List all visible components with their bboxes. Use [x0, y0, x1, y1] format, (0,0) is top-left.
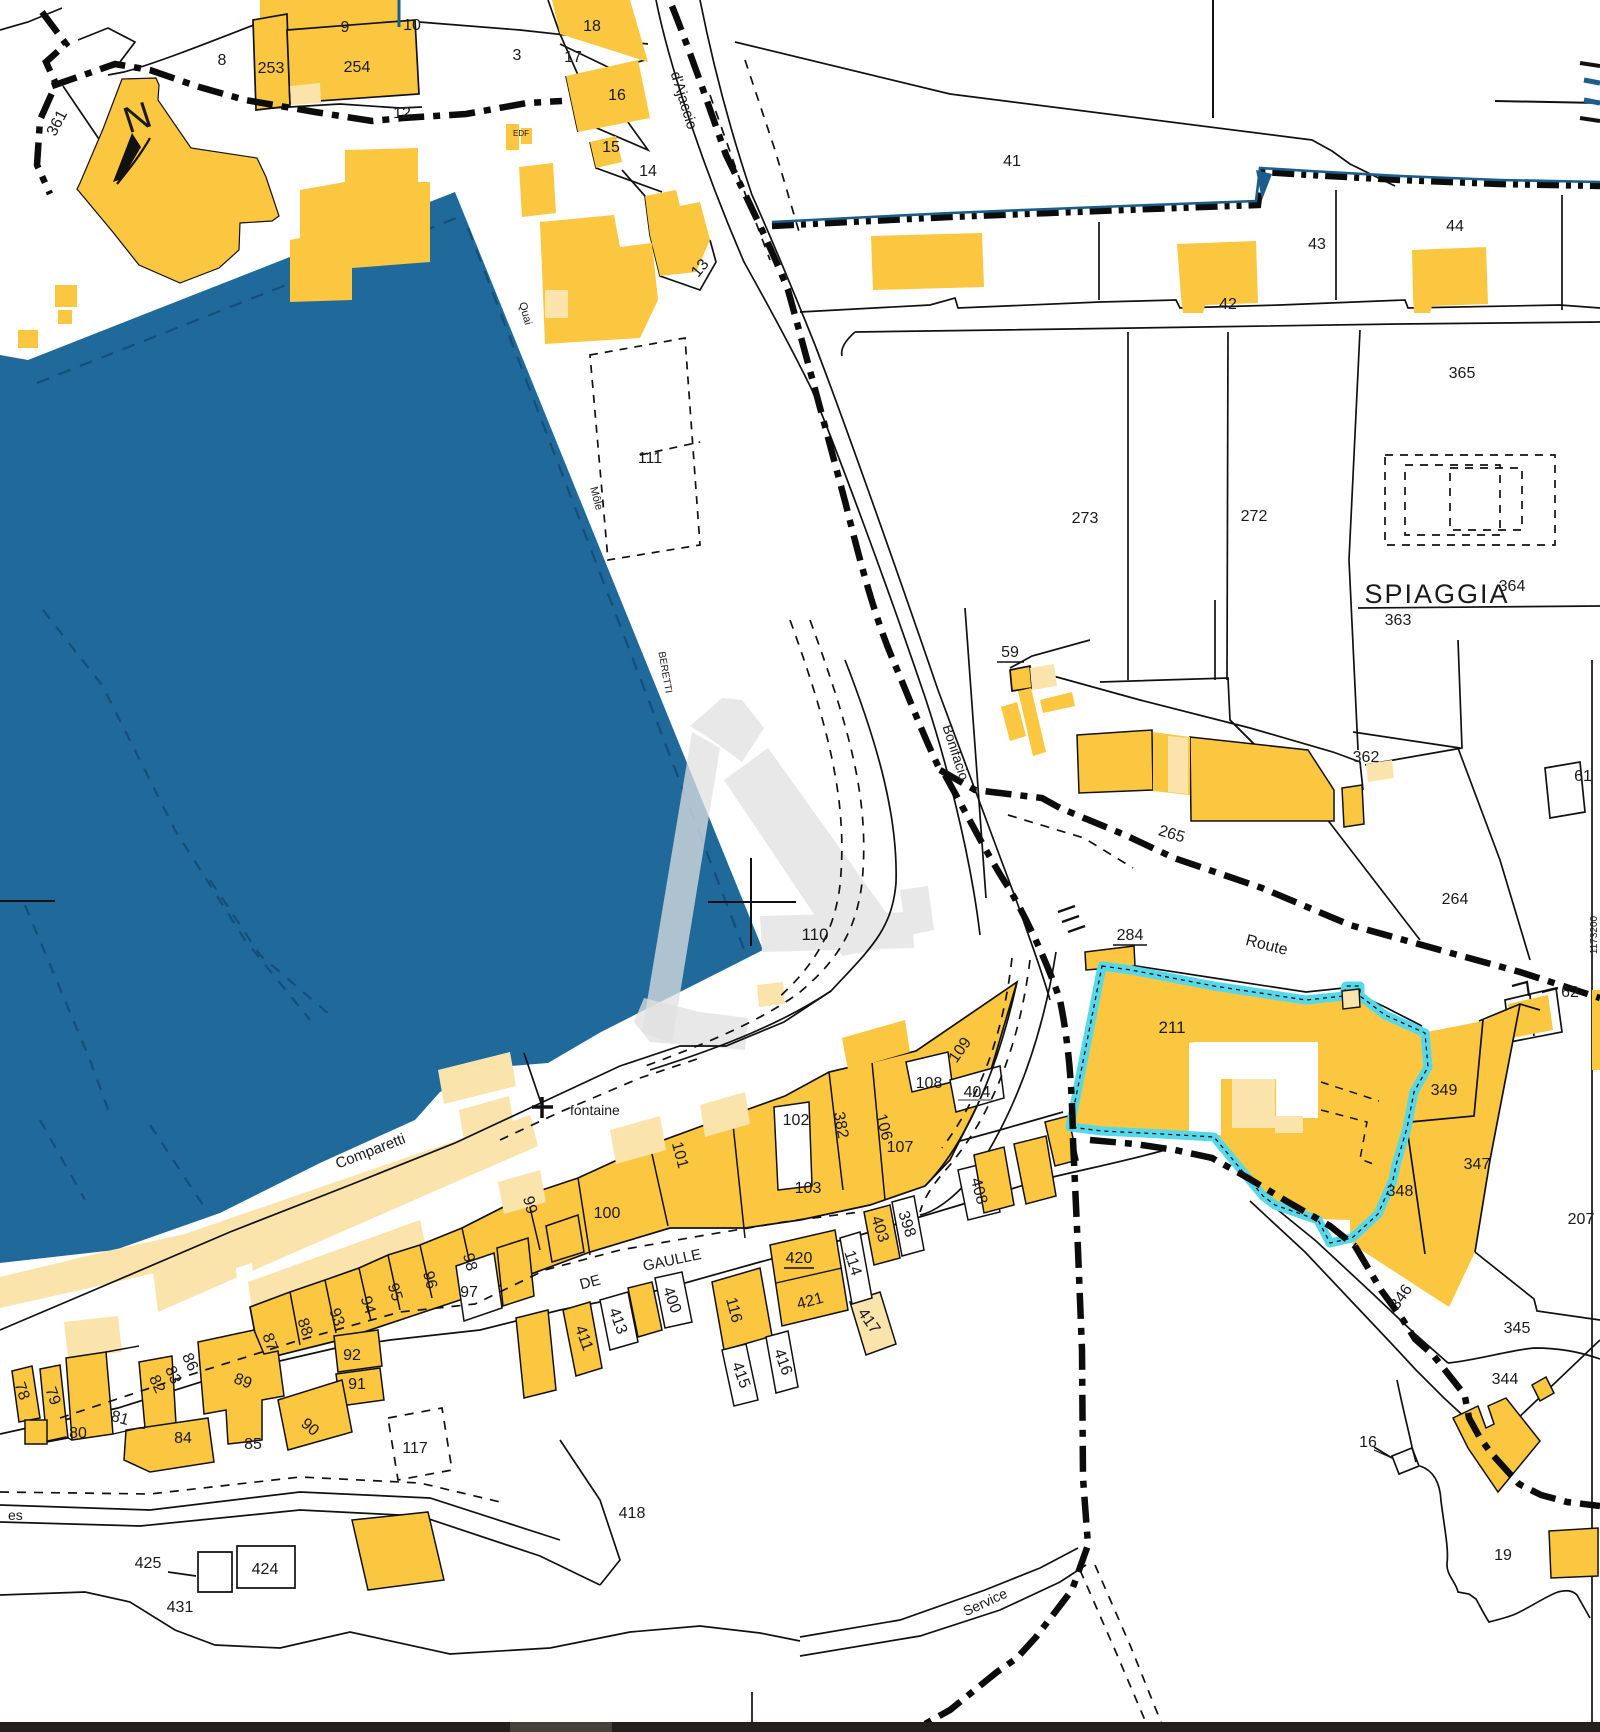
- svg-text:211: 211: [1158, 1018, 1185, 1037]
- svg-text:43: 43: [1308, 236, 1326, 253]
- svg-text:61: 61: [1574, 768, 1592, 785]
- svg-text:254: 254: [344, 59, 371, 76]
- svg-text:418: 418: [619, 1505, 646, 1522]
- svg-text:272: 272: [1241, 508, 1268, 525]
- svg-text:100: 100: [594, 1205, 621, 1222]
- svg-text:363: 363: [1385, 612, 1412, 629]
- svg-text:44: 44: [1446, 218, 1464, 235]
- svg-text:424: 424: [252, 1561, 279, 1578]
- svg-text:12: 12: [393, 105, 411, 122]
- svg-text:18: 18: [583, 18, 601, 35]
- svg-text:425: 425: [135, 1555, 162, 1572]
- svg-text:17: 17: [564, 49, 582, 66]
- svg-text:59: 59: [1001, 644, 1019, 661]
- svg-text:85: 85: [244, 1436, 262, 1453]
- svg-text:344: 344: [1492, 1371, 1519, 1388]
- svg-text:207: 207: [1568, 1211, 1595, 1228]
- svg-text:fontaine: fontaine: [570, 1102, 620, 1118]
- svg-text:264: 264: [1442, 891, 1469, 908]
- svg-text:273: 273: [1072, 510, 1099, 527]
- svg-text:349: 349: [1431, 1082, 1458, 1099]
- svg-text:41: 41: [1003, 153, 1021, 170]
- svg-text:365: 365: [1449, 365, 1476, 382]
- svg-text:84: 84: [174, 1430, 192, 1447]
- svg-text:1173200: 1173200: [1589, 915, 1600, 954]
- svg-text:364: 364: [1499, 578, 1526, 595]
- svg-text:348: 348: [1387, 1183, 1414, 1200]
- svg-text:16: 16: [608, 87, 626, 104]
- svg-text:284: 284: [1117, 927, 1144, 944]
- svg-text:16: 16: [1359, 1434, 1377, 1451]
- svg-text:420: 420: [786, 1250, 813, 1267]
- svg-text:42: 42: [1219, 296, 1237, 313]
- svg-text:es: es: [8, 1507, 23, 1523]
- svg-text:91: 91: [348, 1376, 366, 1393]
- svg-text:97: 97: [460, 1284, 478, 1301]
- svg-text:15: 15: [602, 139, 620, 156]
- svg-text:102: 102: [783, 1112, 810, 1129]
- svg-text:10: 10: [403, 17, 421, 34]
- svg-text:19: 19: [1494, 1547, 1512, 1564]
- svg-text:117: 117: [402, 1440, 428, 1457]
- svg-text:103: 103: [795, 1180, 822, 1197]
- svg-text:62: 62: [1561, 984, 1579, 1001]
- svg-text:404: 404: [964, 1084, 991, 1101]
- svg-text:347: 347: [1464, 1156, 1491, 1173]
- svg-text:92: 92: [343, 1347, 361, 1364]
- svg-text:14: 14: [639, 163, 657, 180]
- svg-text:3: 3: [513, 47, 522, 64]
- svg-text:8: 8: [218, 52, 227, 69]
- svg-text:431: 431: [167, 1599, 194, 1616]
- svg-text:345: 345: [1504, 1320, 1531, 1337]
- svg-text:111: 111: [638, 450, 662, 467]
- svg-text:SPIAGGIA: SPIAGGIA: [1364, 579, 1509, 609]
- svg-text:253: 253: [258, 60, 285, 77]
- svg-text:80: 80: [69, 1425, 87, 1442]
- svg-text:362: 362: [1353, 749, 1380, 766]
- svg-text:9: 9: [341, 19, 350, 36]
- svg-text:107: 107: [887, 1139, 914, 1156]
- svg-text:EDF: EDF: [513, 129, 529, 138]
- svg-text:108: 108: [916, 1075, 943, 1092]
